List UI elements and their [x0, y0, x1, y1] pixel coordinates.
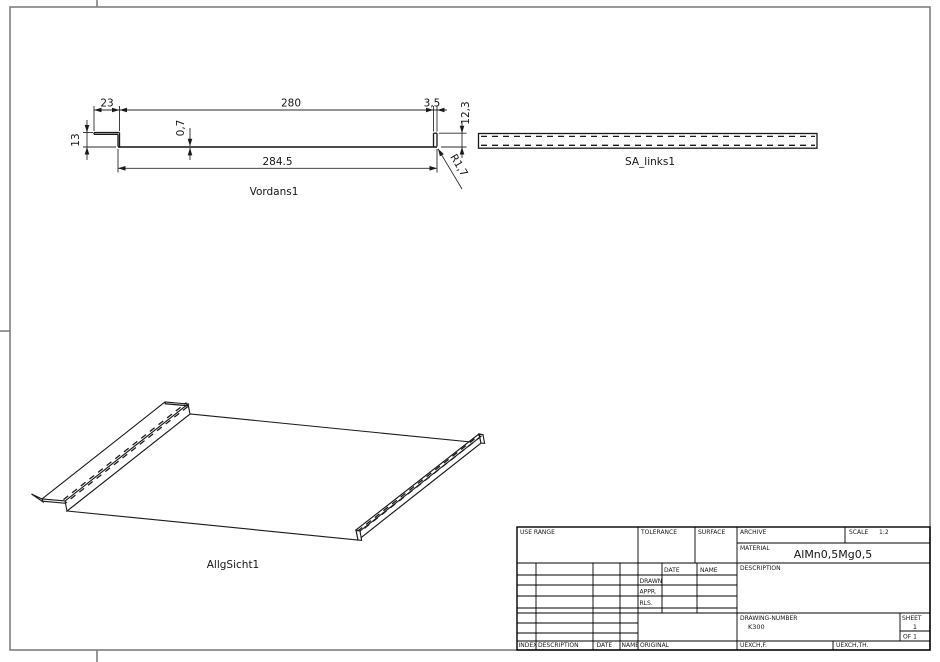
use-range-label: USE RANGE [520, 529, 555, 536]
dim-0-7: 0,7 [175, 120, 187, 137]
drawing-number-label: DRAWING-NUMBER [740, 615, 797, 622]
appr-label: APPR. [640, 589, 657, 596]
dim-arrow [460, 126, 465, 134]
surface-label: SURFACE [698, 529, 725, 536]
iso-lip-front-sliver [32, 494, 44, 502]
sheet-value: 1 [913, 623, 917, 631]
footer-description: DESCRIPTION [538, 642, 579, 649]
date-label: DATE [664, 567, 680, 574]
scale-label: SCALE [849, 529, 868, 536]
front-view-dimensions: 23 280 3,5 13 0,7 284.5 [70, 98, 472, 190]
dim-r1-7: R1,7 [447, 152, 470, 179]
side-view-label: SA_links1 [625, 156, 675, 168]
footer-name: NAME [622, 642, 640, 649]
title-block: USE RANGE TOLERANCE SURFACE ARCHIVE SCAL… [517, 527, 930, 650]
footer-index: INDEX [519, 642, 538, 649]
dim-arrow [188, 139, 193, 147]
iso-view-label: AllgSicht1 [207, 559, 260, 571]
dim-284-5: 284.5 [262, 156, 292, 168]
title-block-border [517, 527, 930, 650]
dim-3-5: 3,5 [424, 98, 441, 110]
dim-13: 13 [70, 133, 82, 146]
dim-arrow [85, 125, 90, 133]
material-label: MATERIAL [740, 545, 770, 552]
footer-original: ORIGINAL [640, 642, 670, 649]
dim-arrow [430, 166, 438, 171]
dim-arrow [118, 166, 126, 171]
material-value: AlMn0,5Mg0,5 [794, 548, 873, 561]
dim-arrow [188, 148, 193, 156]
footer-date: DATE [597, 642, 613, 649]
side-view-outline [479, 134, 818, 149]
dim-arrow [460, 147, 465, 155]
footer-uexch-th: UEXCH,TH. [836, 642, 869, 649]
description-label: DESCRIPTION [740, 565, 781, 572]
tolerance-label: TOLERANCE [640, 529, 677, 536]
dim-12-3: 12,3 [460, 101, 472, 124]
front-view-label: Vordans1 [250, 186, 299, 198]
front-view-outline [94, 133, 437, 148]
side-view: SA_links1 [479, 134, 818, 169]
footer-uexch-f: UEXCH,F. [740, 642, 767, 649]
front-view: 23 280 3,5 13 0,7 284.5 [70, 98, 472, 199]
sheet-label: SHEET [902, 615, 922, 622]
drawing-number-value: K300 [748, 623, 765, 631]
archive-label: ARCHIVE [740, 529, 767, 536]
drawn-label: DRAWN [640, 578, 663, 585]
of-label: OF 1 [903, 634, 917, 641]
iso-view: AllgSicht1 [32, 402, 485, 571]
scale-value: 1:2 [879, 529, 889, 536]
rls-label: RLS. [640, 600, 653, 607]
drawing-sheet: 23 280 3,5 13 0,7 284.5 [0, 0, 940, 662]
dim-23: 23 [100, 98, 113, 110]
dim-arrow [120, 108, 128, 113]
dim-arrow [85, 147, 90, 155]
name-label: NAME [700, 567, 718, 574]
dim-280: 280 [281, 98, 301, 110]
